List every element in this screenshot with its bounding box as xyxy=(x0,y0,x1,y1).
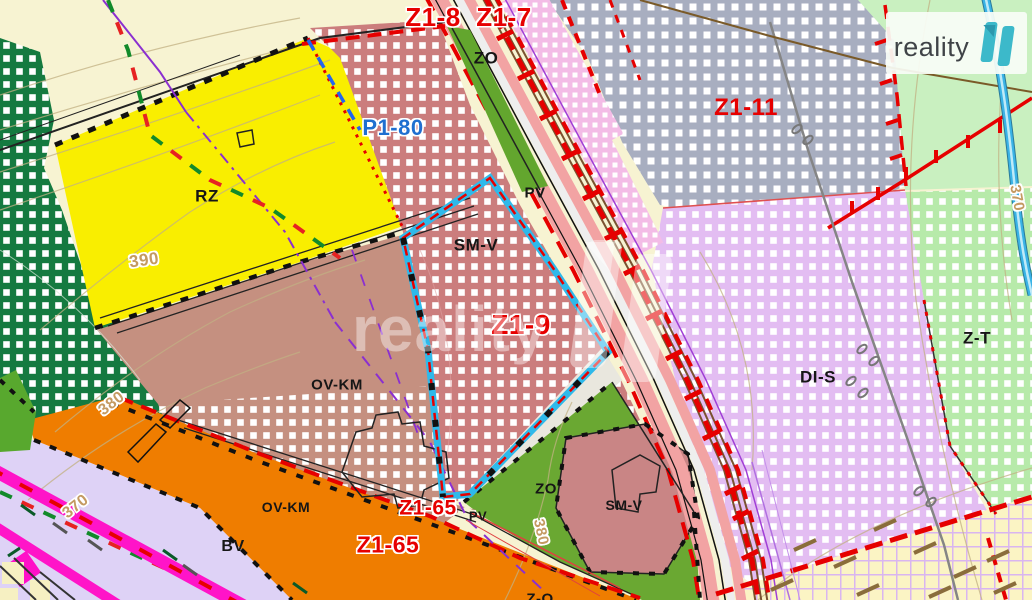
reality11-logo-icon xyxy=(975,20,1019,66)
map-artwork xyxy=(0,0,1032,600)
reality11-logo: reality xyxy=(886,12,1027,74)
zoning-map-screenshot: Z1-8Z1-7ZOP1-80PVSM-VZ1-9Z1-11RZOV-KMOV-… xyxy=(0,0,1032,600)
logo-brand-text: reality xyxy=(894,32,970,63)
